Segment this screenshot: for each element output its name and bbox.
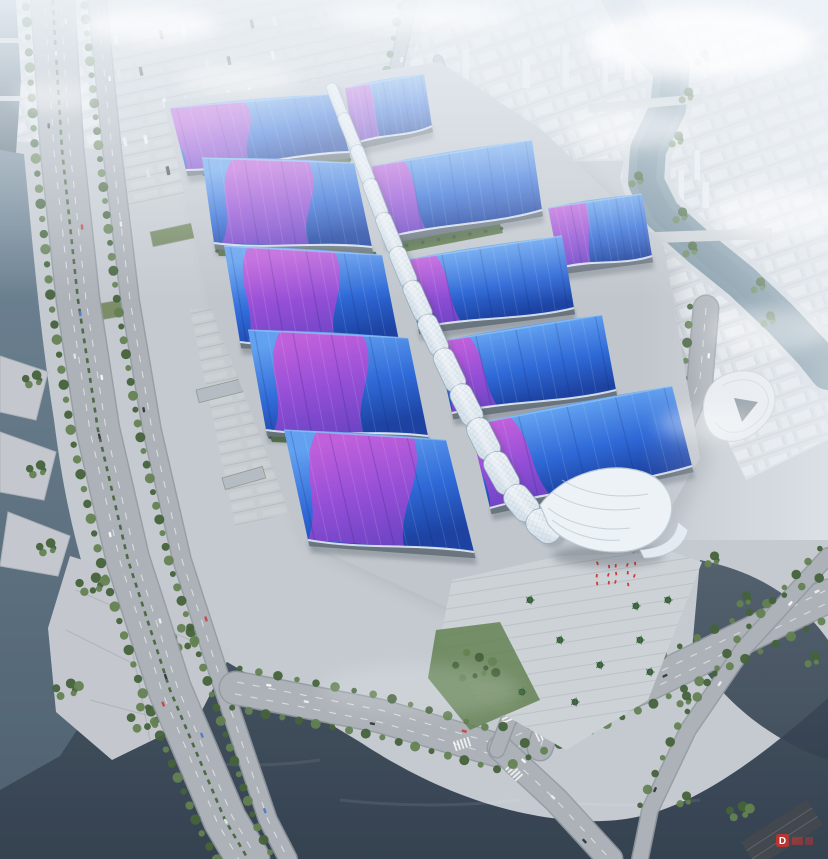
watermark-letter: D: [779, 836, 786, 847]
overall-haze-tint: [0, 0, 828, 859]
watermark-glyph-block: [805, 837, 813, 845]
atmosphere-haze: [0, 0, 828, 859]
aerial-rendering: D: [0, 0, 828, 859]
watermark-glyph-block: [792, 837, 803, 845]
aerial-rendering-stage: D: [0, 0, 828, 859]
